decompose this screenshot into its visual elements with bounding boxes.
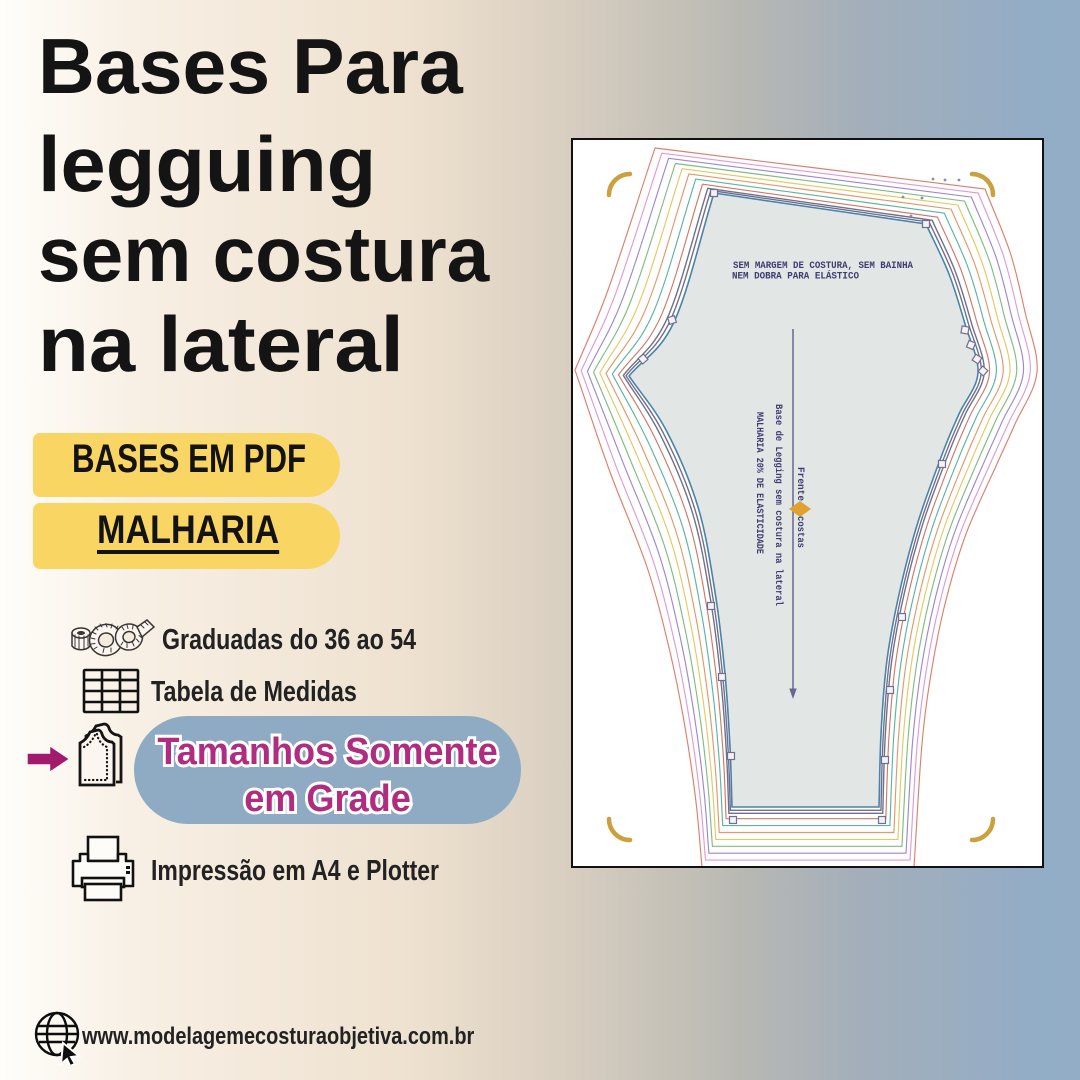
svg-text:Frente: Frente <box>794 467 805 501</box>
svg-text:costas: costas <box>794 516 805 548</box>
svg-text:Base de Legging sem costura na: Base de Legging sem costura na lateral <box>772 404 784 606</box>
svg-text:NEM DOBRA PARA ELÁSTICO: NEM DOBRA PARA ELÁSTICO <box>732 269 859 283</box>
svg-text:MALHARIA 20% DE ELASTICIDADE: MALHARIA 20% DE ELASTICIDADE <box>753 412 764 554</box>
